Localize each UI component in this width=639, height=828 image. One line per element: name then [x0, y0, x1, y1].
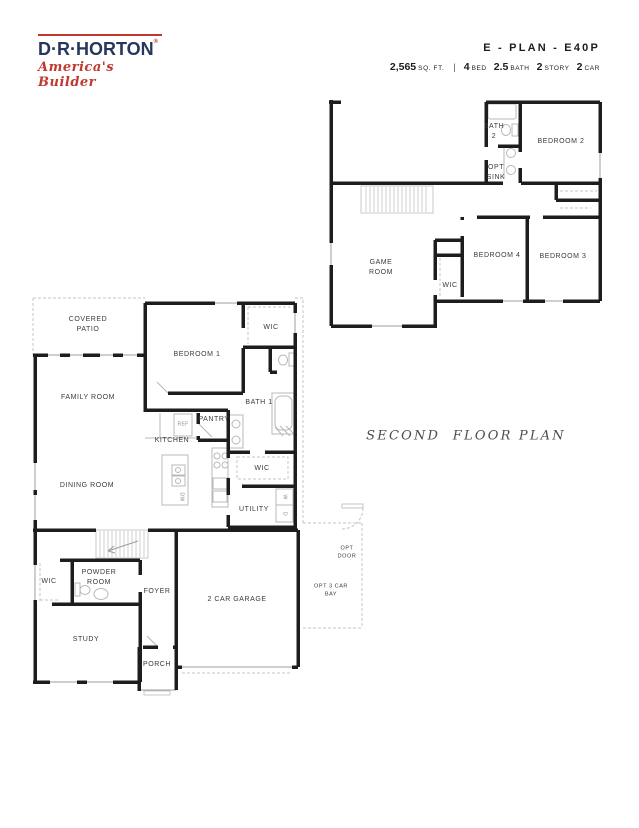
- first-floor-stairs-icon: [96, 530, 148, 558]
- second-floor-stairs-icon: [361, 186, 433, 213]
- room-label-garage: 2 CAR GARAGE: [207, 595, 266, 605]
- room-label-wic-bedroom1: WIC: [263, 323, 278, 333]
- room-label-bedroom2: BEDROOM 2: [538, 137, 585, 147]
- appliance-label-dryer: D: [281, 512, 288, 516]
- floorplan-page: D·R·HORTON® America's Builder E - PLAN -…: [0, 0, 639, 828]
- label-opt-door: OPT DOOR: [338, 545, 357, 560]
- appliance-label-ref: REF: [178, 422, 189, 429]
- room-label-family-room: FAMILY ROOM: [61, 393, 115, 403]
- room-label-bedroom4: BEDROOM 4: [474, 251, 521, 261]
- room-label-powder-room: POWDER ROOM: [82, 568, 117, 588]
- room-label-covered-patio: COVERED PATIO: [69, 315, 107, 335]
- room-label-wic-hall: WIC: [41, 577, 56, 587]
- room-label-opt-sink: OPT SINK: [487, 163, 506, 183]
- first-floor-fixtures-icon: [75, 353, 363, 695]
- second-floor-plan: [329, 100, 600, 326]
- room-label-bath2: BATH 2: [484, 122, 504, 142]
- room-label-porch: PORCH: [143, 660, 171, 670]
- appliance-label-dw: DW: [178, 493, 185, 502]
- first-floor-walls: [33, 303, 298, 691]
- room-label-kitchen: KITCHEN: [155, 436, 190, 446]
- room-label-study: STUDY: [73, 635, 99, 645]
- room-label-utility: UTILITY: [239, 505, 269, 515]
- room-label-bedroom1: BEDROOM 1: [174, 350, 221, 360]
- room-label-pantry: PANTRY: [198, 415, 229, 425]
- label-opt-3car-bay: OPT 3 CAR BAY: [314, 583, 348, 598]
- second-floor-caption: SECOND FLOOR PLAN: [366, 429, 566, 444]
- room-label-wic-master: WIC: [254, 464, 269, 474]
- room-label-dining-room: DINING ROOM: [60, 481, 114, 491]
- room-label-wic-second: WIC: [442, 281, 457, 291]
- room-label-bath1: BATH 1: [245, 398, 272, 408]
- room-label-foyer: FOYER: [144, 587, 171, 597]
- room-label-bedroom3: BEDROOM 3: [540, 252, 587, 262]
- appliance-label-washer: W: [281, 494, 288, 499]
- floorplan-drawing: [0, 0, 639, 828]
- first-floor-windows: [35, 303, 295, 690]
- room-label-game-room: GAME ROOM: [369, 258, 393, 278]
